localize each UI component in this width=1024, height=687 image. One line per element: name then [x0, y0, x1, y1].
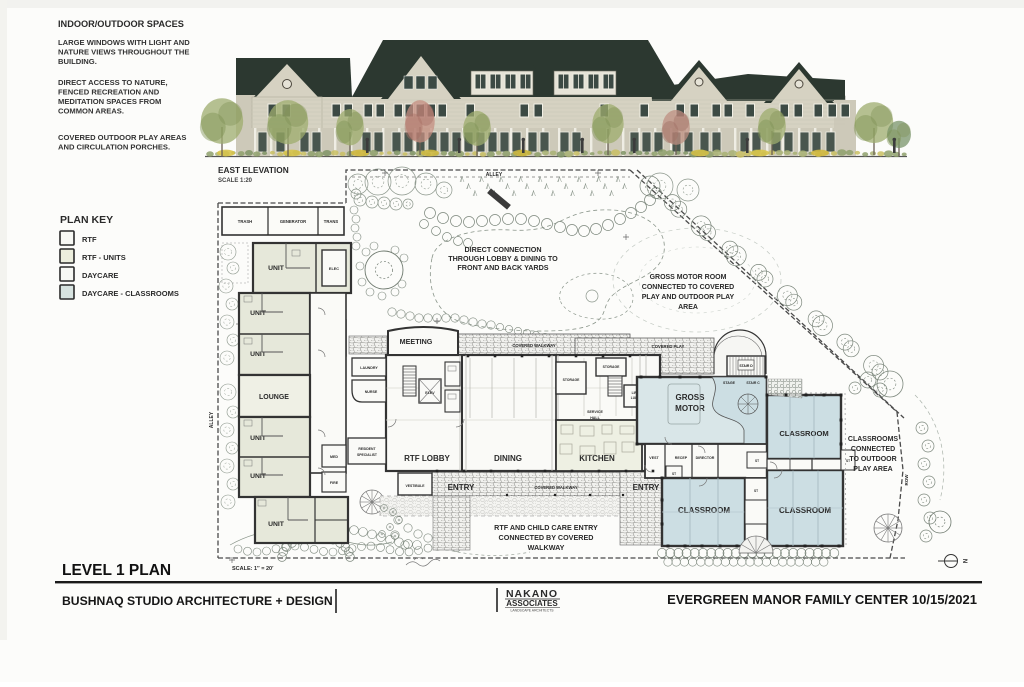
svg-text:FENCED RECREATION AND: FENCED RECREATION AND [58, 88, 160, 97]
svg-text:ALLEY: ALLEY [486, 172, 503, 178]
svg-text:DAYCARE: DAYCARE [82, 271, 118, 280]
svg-text:COVERED WALKWAY: COVERED WALKWAY [512, 343, 556, 348]
svg-text:NURSE: NURSE [365, 390, 378, 394]
svg-text:RTF: RTF [82, 235, 97, 244]
svg-text:GROSS: GROSS [676, 393, 706, 402]
svg-text:PLAY AND OUTDOOR PLAY: PLAY AND OUTDOOR PLAY [642, 294, 735, 301]
svg-text:UNIT: UNIT [268, 265, 285, 272]
svg-text:DIRECT CONNECTION: DIRECT CONNECTION [464, 245, 541, 254]
svg-text:VESTIBULE: VESTIBULE [405, 484, 425, 488]
svg-text:SCALE 1:20: SCALE 1:20 [218, 178, 253, 184]
svg-text:RTF LOBBY: RTF LOBBY [404, 454, 450, 463]
svg-text:SPECIALIST: SPECIALIST [357, 453, 378, 457]
svg-text:STORAGE: STORAGE [563, 378, 580, 382]
svg-text:PLAN KEY: PLAN KEY [60, 214, 113, 226]
svg-text:VEST: VEST [649, 456, 659, 460]
svg-text:EVERGREEN MANOR FAMILY CENTER: EVERGREEN MANOR FAMILY CENTER 10/15/2021 [667, 592, 977, 607]
svg-text:LOUNGE: LOUNGE [259, 394, 289, 401]
svg-text:ROW: ROW [904, 474, 909, 486]
svg-text:ALLEY: ALLEY [209, 411, 215, 428]
svg-text:NATURE VIEWS THROUGHOUT THE: NATURE VIEWS THROUGHOUT THE [58, 48, 189, 57]
svg-text:COVERED OUTDOOR PLAY AREAS: COVERED OUTDOOR PLAY AREAS [58, 133, 186, 142]
svg-text:STAIR D: STAIR D [739, 364, 753, 368]
svg-text:SERVICE: SERVICE [587, 410, 603, 414]
svg-text:ELEV: ELEV [425, 391, 435, 395]
svg-text:LANDSCAPE ARCHITECTS: LANDSCAPE ARCHITECTS [511, 609, 555, 613]
svg-text:THROUGH LOBBY & DINING TO: THROUGH LOBBY & DINING TO [448, 254, 558, 263]
svg-text:WALKWAY: WALKWAY [528, 543, 565, 552]
svg-text:KITCHEN: KITCHEN [579, 454, 615, 463]
svg-text:STORAGE: STORAGE [603, 365, 620, 369]
svg-text:ENTRY: ENTRY [448, 483, 475, 492]
svg-text:ST: ST [672, 472, 676, 476]
svg-text:MOTOR: MOTOR [675, 404, 705, 413]
svg-text:TO OUTDOOR: TO OUTDOOR [849, 456, 896, 463]
svg-text:TRASH: TRASH [238, 219, 252, 224]
svg-text:LAUNDRY: LAUNDRY [360, 366, 378, 370]
svg-text:BUILDING.: BUILDING. [58, 57, 97, 66]
svg-text:HALL: HALL [590, 416, 600, 420]
svg-text:RTF AND CHILD CARE ENTRY: RTF AND CHILD CARE ENTRY [494, 523, 598, 532]
svg-text:DIRECTOR: DIRECTOR [696, 456, 715, 460]
svg-text:ENTRY: ENTRY [633, 483, 660, 492]
svg-text:FIRE: FIRE [330, 481, 339, 485]
svg-text:RESIDENT: RESIDENT [358, 447, 376, 451]
svg-text:COMMON AREAS.: COMMON AREAS. [58, 107, 124, 116]
svg-text:RTF - UNITS: RTF - UNITS [82, 253, 126, 262]
svg-text:AREA: AREA [678, 304, 698, 311]
svg-text:ST: ST [754, 489, 758, 493]
svg-text:PLAY AREA: PLAY AREA [853, 466, 892, 473]
svg-text:ST: ST [755, 459, 759, 463]
svg-text:MEDITATION SPACES FROM: MEDITATION SPACES FROM [58, 97, 161, 106]
svg-text:UNIT: UNIT [250, 473, 267, 480]
svg-text:COVERED WALKWAY: COVERED WALKWAY [534, 485, 578, 490]
svg-text:AND CIRCULATION PORCHES.: AND CIRCULATION PORCHES. [58, 143, 170, 152]
svg-text:CLASSROOM: CLASSROOM [678, 506, 730, 515]
svg-text:CONNECTED BY COVERED: CONNECTED BY COVERED [499, 533, 594, 542]
svg-text:BUSHNAQ STUDIO ARCHITECTURE +: BUSHNAQ STUDIO ARCHITECTURE + DESIGN [62, 594, 333, 608]
svg-text:MED: MED [330, 455, 338, 459]
svg-text:UNIT: UNIT [268, 521, 285, 528]
svg-text:MEETING: MEETING [400, 337, 433, 346]
svg-text:LEVEL 1 PLAN: LEVEL 1 PLAN [62, 562, 171, 579]
svg-text:ELEC: ELEC [329, 267, 339, 271]
svg-text:CLASSROOM: CLASSROOM [779, 506, 831, 515]
svg-text:CONNECTED: CONNECTED [851, 446, 895, 453]
svg-text:EAST ELEVATION: EAST ELEVATION [218, 165, 289, 175]
svg-text:CLASSROOM: CLASSROOM [779, 429, 828, 438]
svg-text:DAYCARE - CLASSROOMS: DAYCARE - CLASSROOMS [82, 289, 179, 298]
svg-text:CONNECTED TO COVERED: CONNECTED TO COVERED [642, 284, 734, 291]
svg-text:COVERED PLAY: COVERED PLAY [652, 344, 685, 349]
svg-text:UNIT: UNIT [250, 310, 267, 317]
svg-text:FRONT AND BACK YARDS: FRONT AND BACK YARDS [457, 263, 548, 272]
svg-text:STAIR C: STAIR C [746, 381, 760, 385]
svg-text:RECEP: RECEP [675, 456, 688, 460]
svg-text:CLASSROOMS: CLASSROOMS [848, 436, 899, 443]
svg-text:INDOOR/OUTDOOR SPACES: INDOOR/OUTDOOR SPACES [58, 19, 184, 29]
svg-text:STAGE: STAGE [723, 381, 736, 385]
svg-text:N: N [961, 559, 967, 563]
svg-text:DIRECT ACCESS TO NATURE,: DIRECT ACCESS TO NATURE, [58, 78, 168, 87]
svg-text:TRANS: TRANS [324, 219, 339, 224]
svg-text:DINING: DINING [494, 454, 522, 463]
svg-text:SCALE: 1″ = 20′: SCALE: 1″ = 20′ [232, 566, 274, 572]
svg-text:LARGE WINDOWS WITH LIGHT AND: LARGE WINDOWS WITH LIGHT AND [58, 38, 190, 47]
svg-text:ASSOCIATES: ASSOCIATES [506, 599, 558, 608]
svg-text:GROSS MOTOR ROOM: GROSS MOTOR ROOM [650, 274, 727, 281]
svg-text:GENERATOR: GENERATOR [280, 219, 306, 224]
